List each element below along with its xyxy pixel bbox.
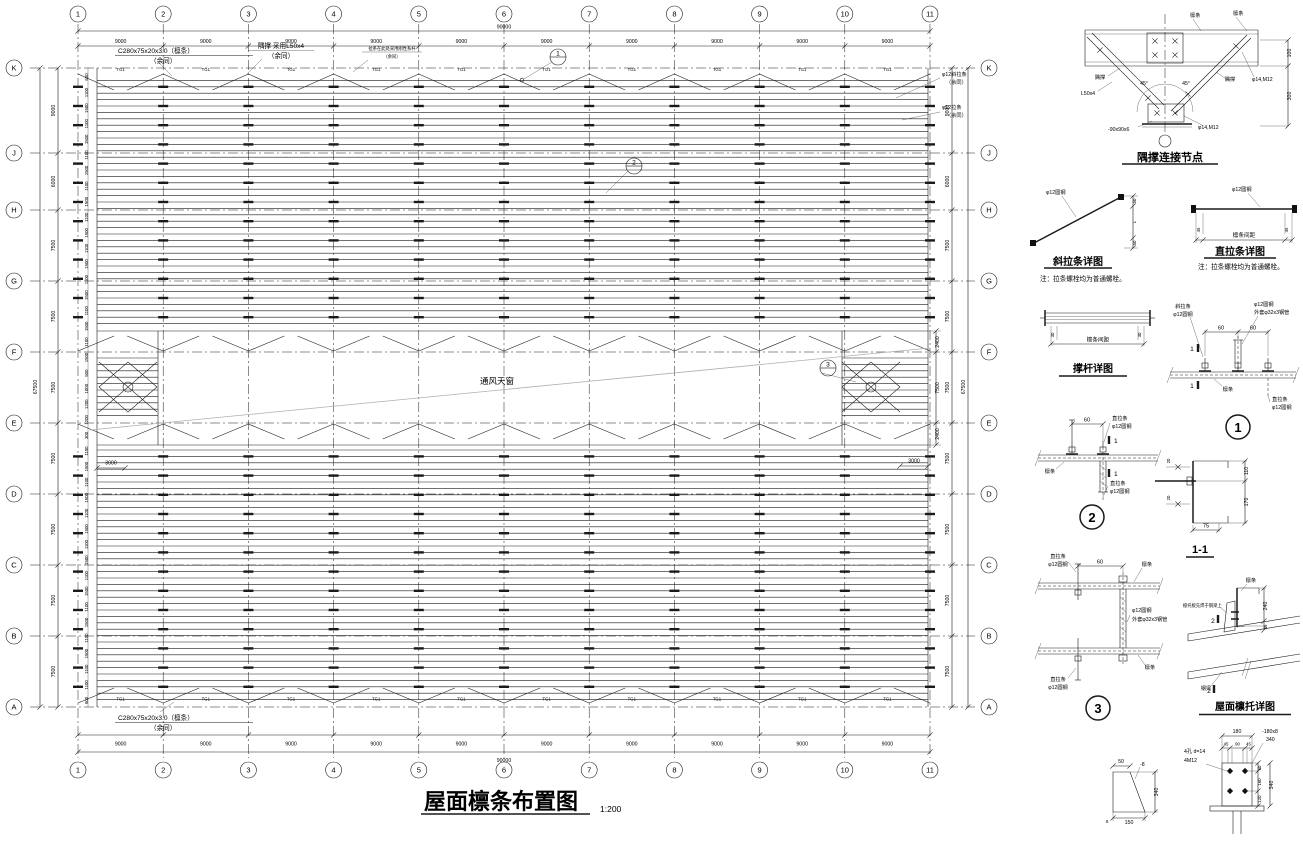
row-axis-label: K xyxy=(11,64,16,73)
knee-brace-line xyxy=(212,424,248,439)
dim-label: 90 xyxy=(1235,742,1240,747)
tie-label-2: φ12圆钢 xyxy=(1112,422,1132,430)
tie-rod-label: TG1 xyxy=(116,697,125,702)
column-axis-label: 7 xyxy=(587,10,591,19)
dim-label: 160 xyxy=(1257,778,1262,786)
knee-brace-line xyxy=(212,336,248,351)
bolt-mark xyxy=(1097,47,1102,52)
purlin-spacing-dim: 1000 xyxy=(84,383,89,393)
tie-rod-label: TG1 xyxy=(287,67,296,72)
purlin-spacing-dim: 1100 xyxy=(84,306,89,316)
bolt-mark xyxy=(1233,43,1238,48)
row-axis-label: B xyxy=(11,632,16,641)
purlin-label: 檩条 xyxy=(1145,663,1155,671)
dim-label: 20 xyxy=(1166,458,1171,463)
plate-label-2: 340 xyxy=(1266,737,1275,743)
row-dim-label: 7500 xyxy=(51,240,57,252)
column-axis-label: 6 xyxy=(502,10,506,19)
section-mark: 1 xyxy=(1114,438,1118,445)
bolt-mark xyxy=(1172,52,1177,57)
purlin-spacing-dim: 1100 xyxy=(84,337,89,347)
cleat-note: 檩托板先焊于钢梁上 xyxy=(1183,602,1222,609)
knee-brace-line xyxy=(553,688,589,703)
detail-line xyxy=(1092,33,1164,105)
skylight-edge-dim-2: 2400 xyxy=(935,428,941,440)
knee-brace-line xyxy=(383,424,419,439)
purlin-spacing-dim: 1100 xyxy=(84,477,89,487)
dim-label: 60 xyxy=(1097,560,1103,566)
purlin-spacing-dim: 1500 xyxy=(84,259,89,269)
tie-label-2: φ12圆钢 xyxy=(1272,403,1292,411)
bay-dim-label: 9000 xyxy=(882,742,894,748)
tie-label-2: φ12圆钢 xyxy=(1048,683,1068,691)
section-1-1: 20 20 110 170 75 1-1 xyxy=(1166,458,1250,556)
detail-line xyxy=(1242,52,1254,77)
total-dim-label: 90000 xyxy=(497,25,512,31)
knee-brace-line xyxy=(419,688,455,703)
detail-line xyxy=(1034,197,1121,243)
row-dim-label: 9000 xyxy=(51,105,57,117)
bay-dim-label: 9000 xyxy=(115,742,127,748)
knee-brace-line xyxy=(724,424,760,439)
row-dim-label: 7500 xyxy=(51,453,57,465)
row-axis-label: E xyxy=(986,419,991,428)
detail-line xyxy=(1211,672,1222,686)
skylight-mid-dim: 7500 xyxy=(935,382,941,394)
knee-brace-line xyxy=(334,74,370,90)
detail-cleat-plate: 50 -8 340 8 150 xyxy=(1106,759,1160,826)
knee-brace-line xyxy=(419,424,455,439)
weld-mark: 8 xyxy=(1106,819,1109,824)
detail-number: 3 xyxy=(1094,701,1101,716)
dim-label: 檩条间距 xyxy=(1233,231,1256,239)
cad-drawing-sheet: 1190009000229000900033900090004490009000… xyxy=(0,0,1303,836)
knee-brace-line xyxy=(298,688,334,703)
purlin-label: 檩条 xyxy=(1246,576,1256,584)
row-axis-label: K xyxy=(986,64,991,73)
detail-node-2: 60 直拉条 φ12圆钢 1 1 檩条 直拉条 φ12圆钢 2 xyxy=(1045,414,1132,525)
knee-brace-line xyxy=(589,424,625,439)
dim-label: 50 xyxy=(1132,240,1137,245)
skylight-edge-dim: 2400 xyxy=(935,336,941,348)
knee-brace-line xyxy=(334,336,370,351)
knee-brace-line xyxy=(760,336,796,351)
tie-note-2: （余同） xyxy=(946,111,967,119)
detail-rect xyxy=(1292,205,1297,213)
row-axis-label: G xyxy=(11,277,17,286)
dim-label: 45 xyxy=(1196,227,1201,232)
purlin-spacing-dim: 500 xyxy=(84,369,89,377)
bay-dim-label: 9000 xyxy=(200,742,212,748)
purlin-spacing-dim: 1500 xyxy=(84,617,89,627)
sheet-title: 屋面檩条布置图 xyxy=(424,789,578,814)
knee-brace-line xyxy=(504,336,540,351)
knee-brace-line xyxy=(809,424,845,439)
knee-brace-line xyxy=(212,688,248,703)
knee-brace-note-2: （余同） xyxy=(268,51,294,60)
knee-brace-note: 隅撑 采用L50x4 xyxy=(258,41,305,50)
plate-label: -90x90x6 xyxy=(1108,127,1129,133)
diag-tie-note-2: （余同） xyxy=(946,78,967,86)
detail-line xyxy=(1206,764,1227,771)
plate-outline xyxy=(1113,772,1145,812)
bay-dim-label: 9000 xyxy=(541,39,553,45)
row-axis-label: C xyxy=(986,561,992,570)
detail-line xyxy=(1157,643,1163,659)
column-axis-label: 3 xyxy=(246,10,250,19)
tie-rod-label: TG1 xyxy=(628,697,637,702)
bay-dim-label: 9000 xyxy=(200,39,212,45)
purlin-label: 檩条 xyxy=(1142,560,1152,568)
knee-brace-line xyxy=(638,74,674,90)
detail-line xyxy=(353,60,368,72)
purlin-spacing-dim: 1100 xyxy=(84,181,89,191)
bolt-mark xyxy=(1154,110,1159,115)
callout-target xyxy=(520,78,524,82)
bay-dim-label: 9000 xyxy=(541,742,553,748)
purlin-label: 檩条 xyxy=(1223,385,1233,393)
dim-label: 檩条间距 xyxy=(1087,336,1110,344)
rod-label: φ12圆钢 xyxy=(1232,185,1252,193)
tie-note: φ12拉条 xyxy=(942,103,962,111)
knee-brace-line xyxy=(894,688,930,703)
total-dim-label: 67500 xyxy=(33,380,39,395)
tie-rod-label: TG1 xyxy=(542,697,551,702)
column-axis-label: 1 xyxy=(76,10,80,19)
knee-brace-line xyxy=(298,336,334,351)
knee-brace-line xyxy=(383,74,419,90)
column-axis-label: 6 xyxy=(502,766,506,775)
purlin-spacing-dim: 1500 xyxy=(84,196,89,206)
row-dim-label: 7500 xyxy=(945,311,951,323)
detail-line xyxy=(1103,486,1108,497)
detail-title: 屋面檩托详图 xyxy=(1215,700,1275,713)
tie-rod-label: TG1 xyxy=(542,67,551,72)
detail-knee-brace-joint: 檩条 檩条 隅撑 隅撑 L50x4 φ14,M12 φ14,M12 -90x90… xyxy=(1081,9,1293,164)
tie-label-2: φ12圆钢 xyxy=(1048,560,1068,568)
purlin-spacing-dim: 600 xyxy=(84,73,89,81)
tie-rod-label: TG1 xyxy=(798,697,807,702)
total-dim-label: 67500 xyxy=(961,380,967,395)
tie-label: 直拉条 xyxy=(1110,479,1126,487)
knee-brace-line xyxy=(248,74,284,90)
purlin-spec-note-2: （余同） xyxy=(150,56,176,65)
purlin-spacing-dim: 1500 xyxy=(84,648,89,658)
knee-brace-line xyxy=(163,688,199,703)
knee-brace-line xyxy=(127,688,163,703)
purlin-spacing-dim: 1200 xyxy=(84,399,89,409)
dim-label: 60 xyxy=(1250,326,1256,332)
knee-brace-line xyxy=(724,336,760,351)
row-axis-label: E xyxy=(11,419,16,428)
tie-rod-label: TG1 xyxy=(116,67,125,72)
purlin-spacing-dim: 1100 xyxy=(84,243,89,253)
detail-line xyxy=(1068,562,1076,572)
tube-label-2: 外套φ32x3钢管 xyxy=(1132,615,1167,623)
knee-brace-line xyxy=(589,336,625,351)
knee-brace-line xyxy=(760,74,796,90)
knee-brace-line xyxy=(468,74,504,90)
detail-rect xyxy=(1030,240,1036,246)
detail-rect xyxy=(1148,104,1184,122)
detail-line xyxy=(1248,193,1260,207)
column-axis-label: 9 xyxy=(758,10,762,19)
dim-label: 60 xyxy=(1218,326,1224,332)
knee-brace-line xyxy=(589,688,625,703)
section-mark: 1 xyxy=(1190,383,1194,390)
row-dim-label: 6000 xyxy=(51,176,57,188)
row-dim-label: 7500 xyxy=(945,524,951,536)
bay-dim-label: 9000 xyxy=(796,39,808,45)
knee-brace-line xyxy=(724,688,760,703)
section-mark: 2 xyxy=(1211,618,1215,625)
dim-label: 180 xyxy=(1233,729,1242,735)
tie-rod-label: TG1 xyxy=(287,697,296,702)
knee-brace-line xyxy=(334,424,370,439)
rod-label: φ12圆钢 xyxy=(1046,188,1066,196)
column-axis-label: 5 xyxy=(417,766,421,775)
detail-number: 2 xyxy=(1088,510,1095,525)
purlin-spacing-dim: 1100 xyxy=(84,570,89,580)
knee-brace-line xyxy=(760,424,796,439)
detail-note: 注：拉条螺栓均为普通螺栓。 xyxy=(1198,262,1284,271)
ridge-tie-note: 拉条在此处采用刚性系杆 xyxy=(368,45,416,52)
knee-brace-line xyxy=(419,74,455,90)
purlin-spacing-dim: 300 xyxy=(84,431,89,439)
column-axis-label: 4 xyxy=(332,766,336,775)
detail-line xyxy=(1108,68,1120,76)
detail-line xyxy=(1100,481,1106,486)
detail-rect xyxy=(1222,763,1252,806)
detail-line xyxy=(1236,17,1247,31)
bay-dim-label: 9000 xyxy=(711,742,723,748)
bolt-hole-mark xyxy=(1227,768,1233,774)
dim-label: 300 xyxy=(1287,92,1293,101)
detail-line xyxy=(160,64,172,76)
tie-label-2: φ12圆钢 xyxy=(1110,487,1130,495)
bolt-mark xyxy=(1172,38,1177,43)
angle-spec-label: L50x4 xyxy=(1081,91,1095,97)
purlin-spacing-dim: 1100 xyxy=(84,633,89,643)
row-axis-label: G xyxy=(986,277,992,286)
detail-line xyxy=(1175,38,1251,114)
detail-title: 撑杆详图 xyxy=(1073,362,1113,375)
row-dim-label: 7500 xyxy=(945,666,951,678)
callout-number: 3 xyxy=(826,362,830,369)
tie-rod-label: TG1 xyxy=(202,67,211,72)
detail-title: 直拉条详图 xyxy=(1215,245,1265,258)
dim-label: 340 xyxy=(1154,788,1160,797)
knee-brace-line xyxy=(212,74,248,90)
bay-dim-label: 9000 xyxy=(456,39,468,45)
purlin-spacing-dim: 1500 xyxy=(84,492,89,502)
angle-dim: 45° xyxy=(1182,81,1190,87)
purlin-spacing-dim: 1100 xyxy=(84,446,89,456)
knee-brace-line xyxy=(845,424,881,439)
tie-label: 直拉条 xyxy=(1112,414,1128,422)
dim-label: 50 xyxy=(1118,759,1124,765)
detail-line xyxy=(1193,19,1201,31)
purlin-spacing-dim: 1500 xyxy=(84,227,89,237)
detail-rect xyxy=(1118,194,1124,200)
purlin-spacing-dim: 1500 xyxy=(84,321,89,331)
knee-brace-line xyxy=(298,424,334,439)
knee-brace-line xyxy=(809,688,845,703)
holes-label: 4孔 d=14 xyxy=(1184,747,1205,755)
tube-label: φ12圆钢 xyxy=(1254,300,1274,308)
crease-line xyxy=(90,348,930,430)
section-mark: 1 xyxy=(1190,346,1194,353)
knee-brace-line xyxy=(383,688,419,703)
tie-rod-label: TG1 xyxy=(202,697,211,702)
detail-line xyxy=(247,59,262,74)
knee-brace-line xyxy=(589,74,625,90)
drawing-canvas: 1190009000229000900033900090004490009000… xyxy=(0,0,1303,836)
knee-brace-line xyxy=(674,74,710,90)
knee-brace-line xyxy=(724,74,760,90)
detail-line xyxy=(1157,578,1163,594)
tie-label: 直拉条 xyxy=(1050,552,1066,560)
row-axis-label: A xyxy=(11,703,16,712)
bay-dim-label: 9000 xyxy=(370,39,382,45)
purlin-spec-note-bottom: C280x75x20x3.0（檩条） xyxy=(118,713,194,722)
dim-label: 45 xyxy=(1246,742,1251,747)
purlin-spacing-dim: 1100 xyxy=(84,539,89,549)
dim-label: 75 xyxy=(1203,524,1209,530)
knee-brace-line xyxy=(845,336,881,351)
bolt-hole-mark xyxy=(1242,768,1248,774)
tie-rod-label: TG1 xyxy=(883,67,892,72)
ridge-tie-note-2: （余同） xyxy=(383,53,400,60)
knee-brace-line xyxy=(163,424,199,439)
dim-label: 30 xyxy=(1137,332,1142,337)
dim-label: 340 xyxy=(1269,781,1275,790)
dim-label: 45 xyxy=(1284,227,1289,232)
purlin-spacing-dim: 1100 xyxy=(84,212,89,222)
row-dim-label: 6000 xyxy=(945,176,951,188)
row-axis-label: J xyxy=(987,149,991,158)
bay-dim-label: 9000 xyxy=(626,742,638,748)
bolt-mark xyxy=(1152,38,1157,43)
dim-label: 45 xyxy=(1263,624,1268,629)
purlin-spacing-dim: 1100 xyxy=(84,508,89,518)
row-axis-label: A xyxy=(986,703,991,712)
bay-dim-label: 9000 xyxy=(882,39,894,45)
dim-label: 110 xyxy=(1244,467,1250,475)
row-dim-label: 7500 xyxy=(51,595,57,607)
purlin-spacing-dim: 1500 xyxy=(84,555,89,565)
roof-purlin-plan: 1190009000229000900033900090004490009000… xyxy=(6,6,997,778)
detail-line xyxy=(1062,196,1076,217)
row-axis-label: H xyxy=(986,206,991,215)
knee-brace-line xyxy=(674,336,710,351)
tie-label: 斜拉条 xyxy=(1175,302,1191,310)
purlin-spacing-dim: 1500 xyxy=(84,134,89,144)
tie-label-2: φ12圆钢 xyxy=(1173,310,1193,318)
detail-line xyxy=(1245,661,1251,679)
tube-label-2: 外套φ32x3钢管 xyxy=(1254,308,1289,316)
detail-line xyxy=(1293,367,1299,383)
tie-rod-label: TG1 xyxy=(372,67,381,72)
purlin-spacing-dim: 1100 xyxy=(84,680,89,690)
purlin-spacing-dim: 1100 xyxy=(84,664,89,674)
detail-note: 注：拉条螺栓均为普通螺栓。 xyxy=(1040,274,1126,283)
purlin-label: 檩条 xyxy=(1045,467,1055,475)
detail-node-3: 直拉条 φ12圆钢 60 檩条 φ12圆钢 外套φ32x3钢管 檩条 直拉条 φ… xyxy=(1048,552,1167,716)
knee-brace-line xyxy=(504,424,540,439)
detail-line xyxy=(1135,767,1140,779)
tie-rod-label: TG1 xyxy=(628,67,637,72)
purlin-spacing-dim: 1100 xyxy=(84,150,89,160)
knee-brace-line xyxy=(163,74,199,90)
column-axis-label: 10 xyxy=(841,10,849,19)
knee-brace-line xyxy=(127,74,163,90)
dim-label: 60 xyxy=(1257,765,1262,770)
column-axis-label: 8 xyxy=(672,766,676,775)
plate-label: -8 xyxy=(1140,762,1145,768)
row-dim-label: 7500 xyxy=(945,453,951,465)
dim-label: 170 xyxy=(1244,498,1250,507)
knee-brace-line xyxy=(894,424,930,439)
row-axis-label: B xyxy=(986,632,991,641)
detail-line xyxy=(1134,568,1142,582)
column-axis-label: 3 xyxy=(246,766,250,775)
knee-brace-line xyxy=(760,688,796,703)
knee-brace-line xyxy=(674,424,710,439)
knee-brace-line xyxy=(553,336,589,351)
row-dim-label: 7500 xyxy=(945,382,951,394)
angle-dim: 45° xyxy=(1140,81,1148,87)
bolt-mark xyxy=(1145,95,1150,100)
bay-dim-label: 9000 xyxy=(796,742,808,748)
purlin-spacing-dim: 1500 xyxy=(84,461,89,471)
tube-label: φ12圆钢 xyxy=(1132,606,1152,614)
knee-brace-line xyxy=(674,688,710,703)
column-axis-label: 2 xyxy=(161,766,165,775)
detail-line xyxy=(1068,668,1076,678)
dim-label: 120 xyxy=(1257,795,1262,803)
detail-line xyxy=(1138,655,1145,665)
purlin-spacing-dim: 1100 xyxy=(84,87,89,97)
knee-brace-line xyxy=(419,336,455,351)
knee-brace-line xyxy=(504,688,540,703)
holes-label-2: 4M12 xyxy=(1184,758,1197,764)
section-mark: 2 xyxy=(1207,688,1211,695)
detail-number: 1 xyxy=(1234,420,1241,435)
section-mark: 1 xyxy=(1114,471,1118,478)
plate-label: -180x8 xyxy=(1262,729,1278,735)
tie-rod-label: TG1 xyxy=(883,697,892,702)
knee-brace-line xyxy=(468,688,504,703)
purlin-label: 檩条 xyxy=(1233,9,1243,17)
row-dim-label: 7500 xyxy=(51,382,57,394)
knee-brace-line xyxy=(809,336,845,351)
row-axis-label: C xyxy=(11,561,17,570)
purlin-spacing-dim: 1100 xyxy=(84,119,89,129)
detail-strut: 30 30 檩条间距 撑杆详图 xyxy=(1050,332,1142,375)
skylight-end-dim-left: 3000 xyxy=(105,461,117,467)
tie-label: 直拉条 xyxy=(1272,395,1288,403)
knee-brace-line xyxy=(809,74,845,90)
dim-label: 60 xyxy=(1084,418,1090,424)
detail-purlin-cleat: 檩条 檩托板先焊于钢梁上 钢梁 2 2 240 45 屋面檩托详图 xyxy=(1183,576,1275,713)
knee-brace-line xyxy=(383,336,419,351)
callout-number: 1 xyxy=(556,51,560,58)
dim-label: 30 xyxy=(1050,332,1055,337)
bay-dim-label: 9000 xyxy=(115,39,127,45)
tie-rod-label: TG1 xyxy=(372,697,381,702)
purlin-spacing-dim: 1100 xyxy=(84,274,89,284)
